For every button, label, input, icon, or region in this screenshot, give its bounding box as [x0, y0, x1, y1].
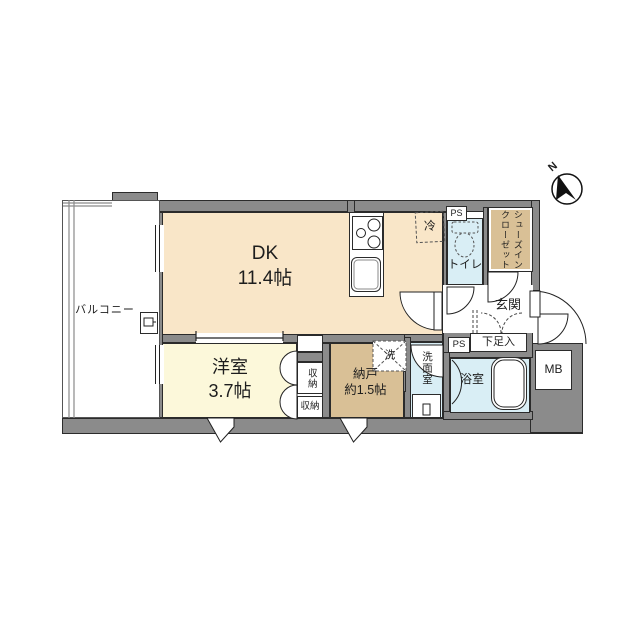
bathtub [491, 357, 527, 410]
washroom-label: 洗面室 [417, 344, 435, 392]
sic-line2: クローゼット [498, 210, 510, 270]
storeroom-name: 納戸 [353, 366, 378, 383]
compass-north-label: N [542, 156, 563, 177]
shoes-in-closet-label: シューズイン クローゼット [489, 209, 532, 270]
dk-label: DK 11.4帖 [200, 240, 330, 292]
stove [352, 216, 383, 250]
floor-plan: バルコニー DK 11.4帖 洋室 3.7帖 納戸 約1.5帖 収納 収納 冷 … [0, 0, 640, 640]
toilet-label: トイレ [447, 259, 483, 273]
balcony-label: バルコニー [72, 303, 138, 317]
refrigerator-label: 冷 [416, 213, 443, 240]
closet-lower-label: 収納 [297, 400, 323, 414]
dk-name: DK [252, 241, 278, 266]
closet-upper-label: 収納 [301, 361, 320, 395]
window-western [151, 345, 164, 384]
toilet-room [447, 218, 483, 285]
compass-icon [552, 174, 582, 204]
shoe-cabinet-label: 下足入 [470, 335, 527, 350]
entrance-door [530, 291, 586, 344]
bathroom-label: 浴室 [450, 372, 494, 387]
wall-washroom-bath [443, 352, 450, 418]
wall-bottom-band [62, 418, 583, 434]
western-room-size: 3.7帖 [208, 380, 251, 404]
western-room-name: 洋室 [212, 356, 248, 380]
ps-bottom-label: PS [448, 338, 470, 352]
meter-box-label: MB [535, 362, 572, 378]
kitchen-sink [351, 257, 381, 292]
entrance-label: 玄関 [486, 297, 530, 312]
closet-access-box [297, 335, 323, 352]
western-room-label: 洋室 3.7帖 [167, 353, 293, 407]
ps-top-label: PS [446, 207, 467, 220]
window-dk [151, 225, 164, 272]
balcony-faucet-box [140, 312, 158, 334]
storeroom-size: 約1.5帖 [344, 382, 386, 399]
storeroom-label: 納戸 約1.5帖 [327, 364, 404, 400]
sic-line1: シューズイン [511, 210, 523, 270]
washer-label: 洗 [379, 348, 401, 364]
sliding-door-gap [196, 333, 283, 343]
vanity [412, 394, 441, 418]
dk-size: 11.4帖 [238, 266, 293, 291]
